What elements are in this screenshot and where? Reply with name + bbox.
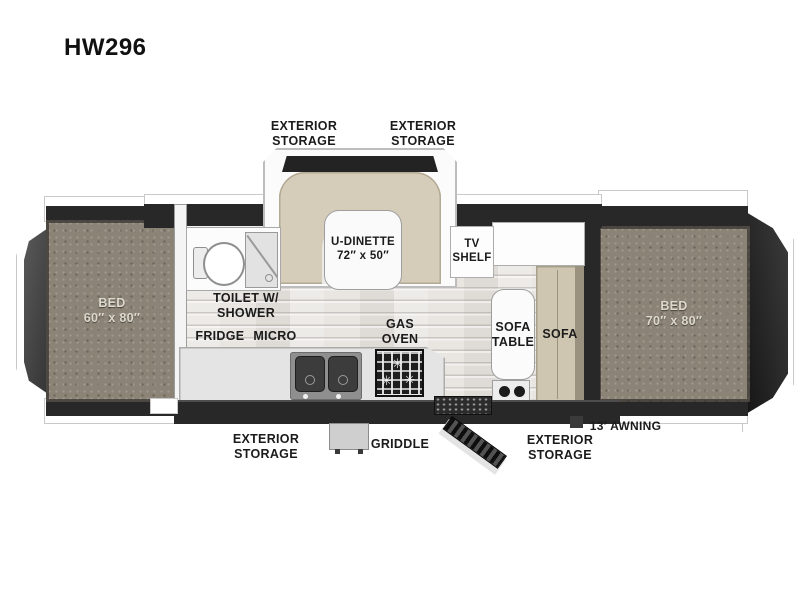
sink-knob-right xyxy=(336,394,341,399)
sofa-table-label: SOFA TABLE xyxy=(492,320,534,350)
right-bed-label: BED 70″ x 80″ xyxy=(646,299,702,329)
left-bed-mattress: BED 60″ x 80″ xyxy=(46,220,178,402)
callout-exterior-storage-rear-right: EXTERIOR STORAGE xyxy=(500,433,620,463)
furnace-vent-2 xyxy=(514,386,525,397)
sofa-table: SOFA TABLE xyxy=(491,289,535,380)
sink-knob-left xyxy=(303,394,308,399)
microwave-label: MICRO xyxy=(253,329,296,344)
rear-wall xyxy=(174,400,620,424)
burner-icon-3: ✳ xyxy=(404,373,415,386)
shower-door-line xyxy=(247,235,278,283)
right-bed-mattress: BED 70″ x 80″ xyxy=(598,226,750,402)
burner-icon-1: ✳ xyxy=(392,357,403,370)
floorplan-canvas: HW296 BED 60″ x 80″ BED 70″ x 80″ U-DINE… xyxy=(0,0,800,600)
callout-awning: 13′ AWNING xyxy=(578,419,673,433)
left-bed-label: BED 60″ x 80″ xyxy=(84,296,140,326)
model-number: HW296 xyxy=(64,34,147,62)
right-bed-rear-rail xyxy=(602,402,748,416)
shower-drain xyxy=(265,274,273,282)
u-dinette-label: U-DINETTE 72″ x 50″ xyxy=(331,236,395,263)
entry-door-mat xyxy=(434,396,492,415)
tv-shelf: TV SHELF xyxy=(450,226,494,278)
furnace-vent-1 xyxy=(499,386,510,397)
sink-bowl-left xyxy=(295,356,325,392)
sink-bowl-right xyxy=(328,356,358,392)
callout-exterior-storage-front-right: EXTERIOR STORAGE xyxy=(363,119,483,149)
callout-exterior-storage-front-left: EXTERIOR STORAGE xyxy=(244,119,364,149)
right-side-wall xyxy=(584,206,600,420)
fridge-micro-labels: FRIDGE MICRO xyxy=(188,329,304,344)
sofa-label: SOFA xyxy=(542,327,577,342)
tv-shelf-label: TV SHELF xyxy=(452,238,491,265)
callout-exterior-storage-rear-left: EXTERIOR STORAGE xyxy=(206,432,326,462)
shower-icon xyxy=(245,232,278,288)
gas-oven-label: GAS OVEN xyxy=(368,317,432,347)
griddle-foot-1 xyxy=(335,449,340,454)
sofa: SOFA xyxy=(536,266,584,403)
callout-griddle: GRIDDLE xyxy=(360,437,440,452)
bathroom xyxy=(186,227,281,291)
sofa-seam xyxy=(557,270,558,399)
right-bed-front-rail xyxy=(600,206,748,228)
bathroom-label: TOILET W/ SHOWER xyxy=(196,291,296,321)
burner-icon-2: ✳ xyxy=(381,374,392,387)
rear-left-bracket xyxy=(150,398,178,414)
overhead-cabinet xyxy=(492,222,585,266)
fridge-label: FRIDGE xyxy=(195,329,244,344)
toilet-icon xyxy=(203,242,245,286)
dinette-slide-roof-vent xyxy=(282,156,438,172)
u-dinette-table: U-DINETTE 72″ x 50″ xyxy=(324,210,402,290)
